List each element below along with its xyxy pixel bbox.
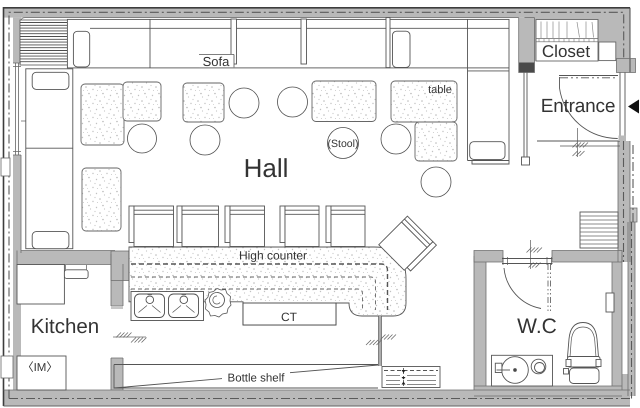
svg-text:High counter: High counter bbox=[239, 249, 307, 263]
svg-text:Bottle shelf: Bottle shelf bbox=[228, 373, 286, 385]
svg-text:Kitchen: Kitchen bbox=[31, 315, 99, 338]
svg-text:(Stool): (Stool) bbox=[328, 138, 359, 150]
svg-text:table: table bbox=[428, 84, 452, 96]
svg-text:Entrance: Entrance bbox=[541, 96, 615, 117]
svg-text:〈IM〉: 〈IM〉 bbox=[22, 361, 58, 374]
svg-text:CT: CT bbox=[281, 310, 298, 324]
svg-text:Hall: Hall bbox=[244, 153, 289, 183]
svg-text:Closet: Closet bbox=[542, 42, 590, 61]
svg-text:Sofa: Sofa bbox=[203, 54, 231, 69]
svg-text:W.C: W.C bbox=[517, 315, 557, 338]
